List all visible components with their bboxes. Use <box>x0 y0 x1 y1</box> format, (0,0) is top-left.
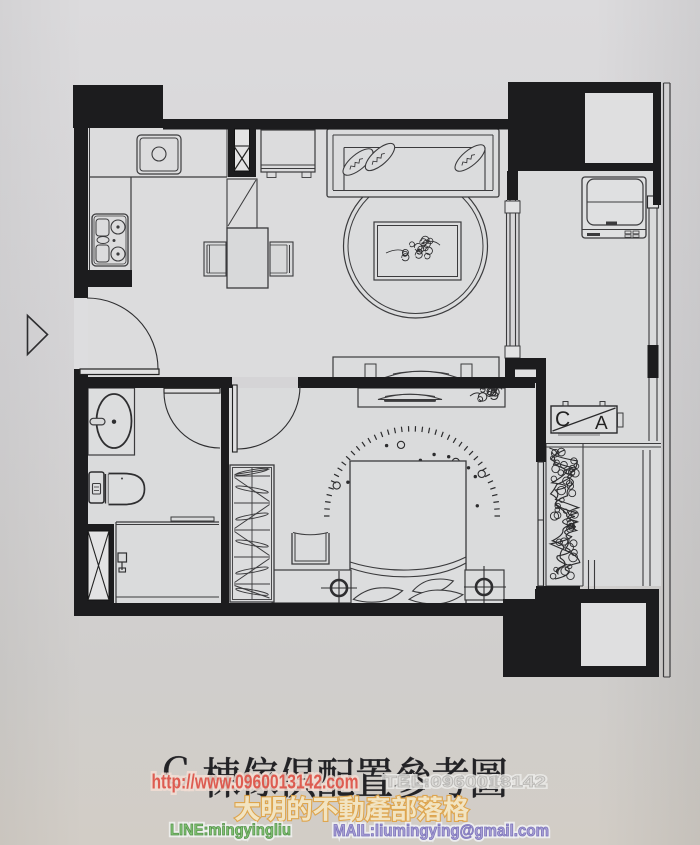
svg-text:MAIL:liumingying@gmail.com: MAIL:liumingying@gmail.com <box>333 822 549 840</box>
svg-text:http://www.0960013142.com: http://www.0960013142.com <box>152 772 359 794</box>
svg-text:LINE:mingyingliu: LINE:mingyingliu <box>170 822 291 839</box>
svg-text:TEL:0960013142: TEL:0960013142 <box>384 774 546 791</box>
